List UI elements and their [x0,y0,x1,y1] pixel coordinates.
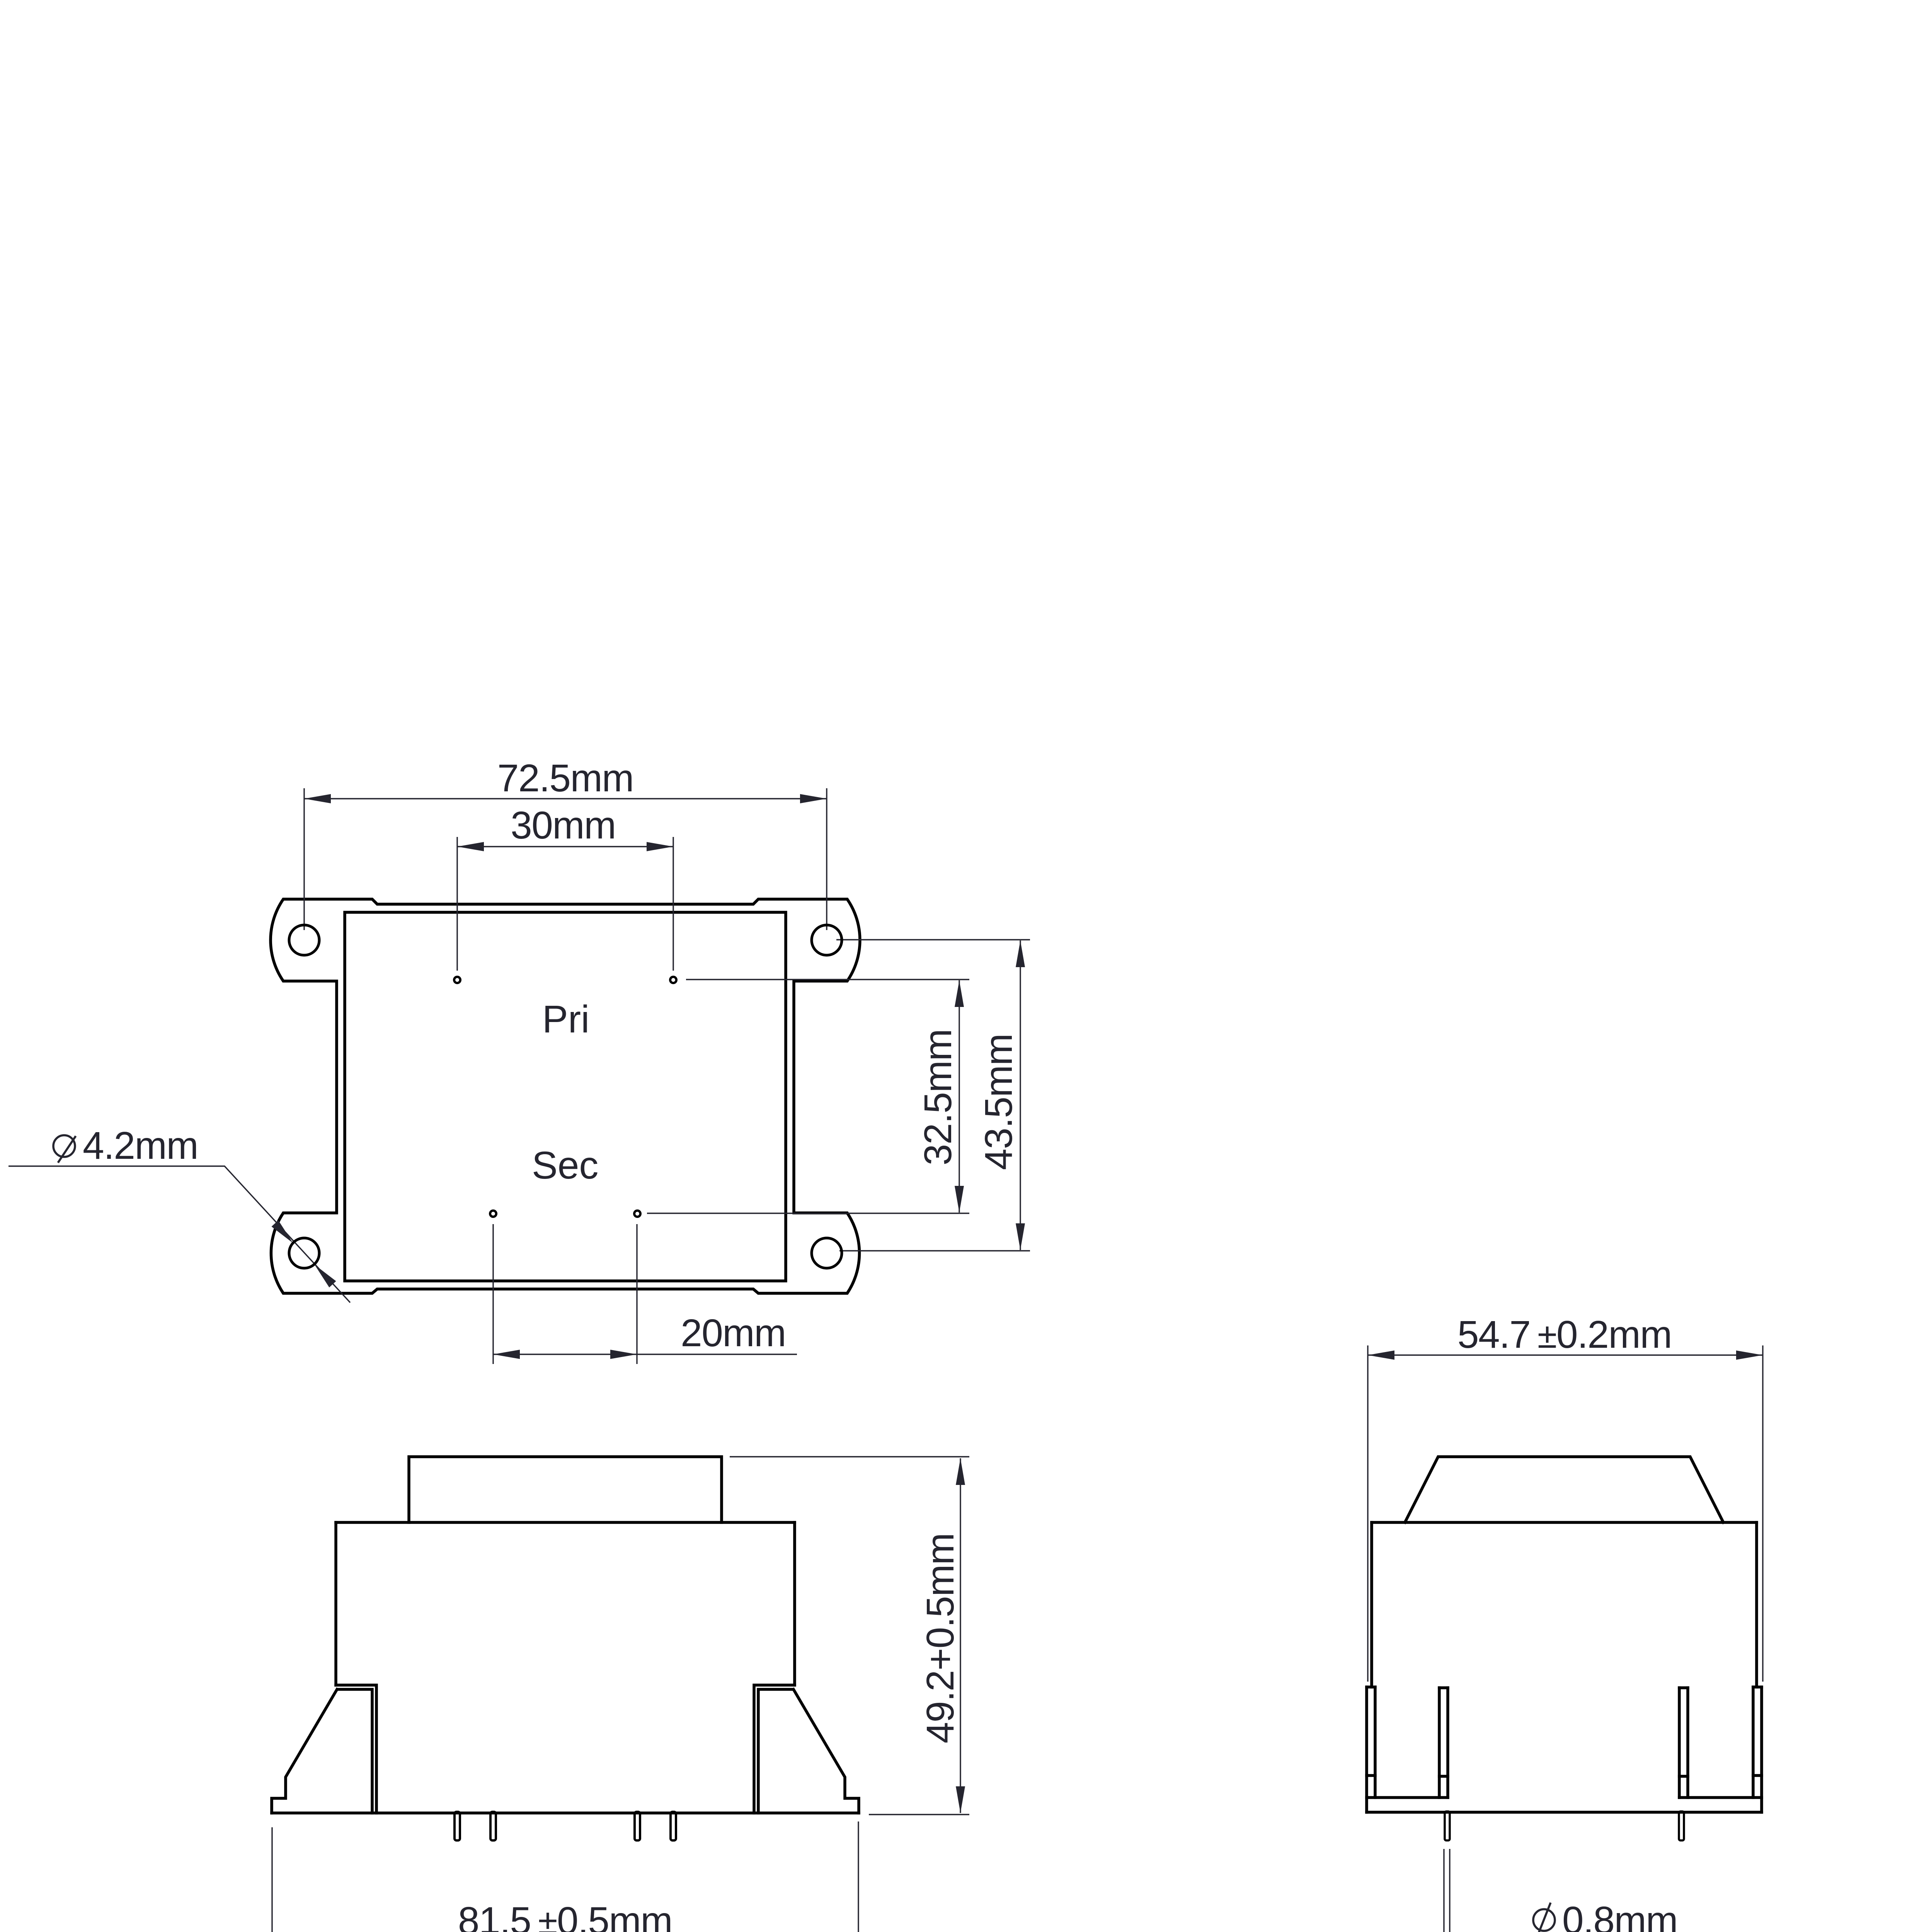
svg-text:81.5 ±0.5mm: 81.5 ±0.5mm [458,1899,672,1932]
svg-text:Pri: Pri [542,998,589,1041]
svg-text:0.8mm: 0.8mm [1562,1899,1677,1932]
svg-text:Sec: Sec [532,1144,598,1187]
svg-text:32.5mm: 32.5mm [916,1029,960,1165]
svg-text:72.5mm: 72.5mm [497,757,633,800]
svg-text:30mm: 30mm [511,804,616,847]
svg-text:20mm: 20mm [681,1311,786,1355]
svg-text:49.2+0.5mm: 49.2+0.5mm [919,1533,962,1743]
svg-text:4.2mm: 4.2mm [83,1124,198,1167]
svg-text:43.5mm: 43.5mm [977,1034,1020,1170]
svg-text:54.7 ±0.2mm: 54.7 ±0.2mm [1457,1313,1672,1356]
